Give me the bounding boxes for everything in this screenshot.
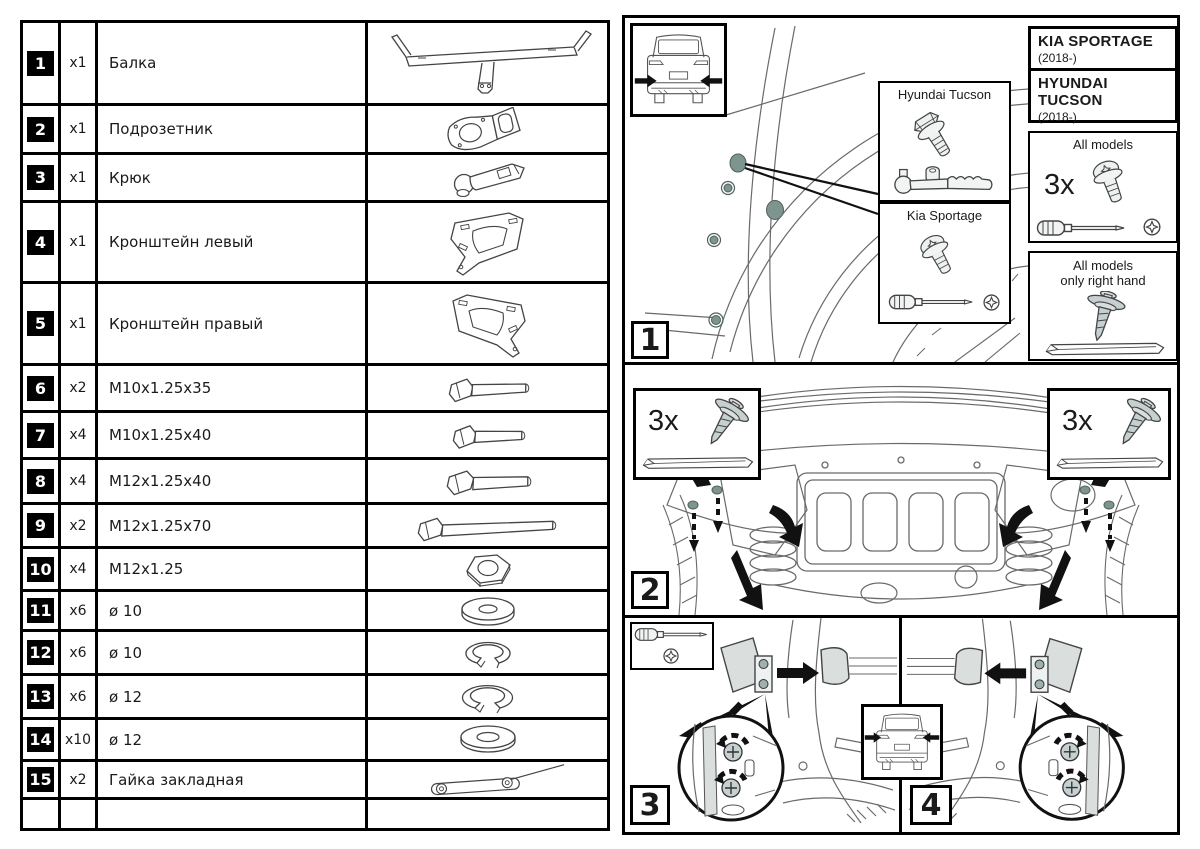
- part-number-badge: 9: [27, 513, 54, 538]
- table-row: 9 x2 M12x1.25x70: [23, 505, 607, 549]
- part-name: ø 10: [98, 592, 368, 629]
- ratchet-icon: [895, 167, 992, 193]
- steps-3-4-row: 3: [625, 618, 1177, 832]
- part-name: Кронштейн правый: [98, 284, 368, 363]
- part-qty: x2: [61, 762, 98, 797]
- removal-arrows: [731, 505, 1071, 610]
- part-name: ø 12: [98, 720, 368, 759]
- kia-sportage-title: KIA SPORTAGE: [1038, 33, 1168, 50]
- part-qty: x2: [61, 366, 98, 410]
- part-qty: x1: [61, 106, 98, 152]
- part-number-badge: 11: [27, 598, 54, 623]
- sportage-label: Kia Sportage: [880, 208, 1009, 223]
- table-row: 4 x1 Кронштейн левый: [23, 203, 607, 284]
- sportage-fastener-box: Kia Sportage: [878, 202, 1011, 324]
- spring-washer-icon: [368, 632, 607, 673]
- phillips-bit-icon: [664, 649, 678, 663]
- part-name: M12x1.25x40: [98, 460, 368, 502]
- all-models-qty: 3x: [1044, 169, 1075, 202]
- part-name: Подрозетник: [98, 106, 368, 152]
- arrow-left-icon: [635, 75, 657, 88]
- step3-number: 3: [630, 785, 670, 825]
- part-qty: x1: [61, 284, 98, 363]
- parts-table: 1 x1 Балка 2 x1 Подрозетник: [20, 20, 610, 831]
- bulb-unit: [821, 648, 897, 685]
- trim-tool-icon: [640, 455, 756, 472]
- flat-washer-icon: [368, 720, 607, 759]
- arrow-left-icon: [865, 732, 881, 742]
- step2-number: 2: [631, 571, 669, 609]
- tow-hook-icon: [368, 155, 607, 200]
- table-row: 14 x10 ø 12: [23, 720, 607, 762]
- screwdriver-icon: [1036, 217, 1132, 239]
- part-qty: x10: [61, 720, 98, 759]
- clip-qty-box-left: 3x: [633, 388, 761, 480]
- part-name: ø 10: [98, 632, 368, 673]
- clip-qty-box-right: 3x: [1047, 388, 1171, 480]
- part-name: Крюк: [98, 155, 368, 200]
- part-name: M10x1.25x40: [98, 413, 368, 457]
- part-number-badge: 15: [27, 767, 54, 792]
- part-number-badge: 12: [27, 640, 54, 665]
- bracket-right-icon: [368, 284, 607, 363]
- part-number-badge: 5: [27, 311, 54, 336]
- trim-clip-icon: [1108, 395, 1164, 451]
- trim-clip-icon: [696, 395, 752, 451]
- part-qty: x1: [61, 23, 98, 103]
- part-number-badge: 1: [27, 51, 54, 76]
- weld-nut-strip-icon: [368, 762, 607, 797]
- part-name: M12x1.25x70: [98, 505, 368, 546]
- socket-plate-icon: [368, 106, 607, 152]
- hyundai-tucson-title: HYUNDAI TUCSON: [1038, 75, 1168, 109]
- tucson-fastener-box: Hyundai Tucson: [878, 81, 1011, 202]
- step1-number: 1: [631, 321, 669, 359]
- part-number-badge: 6: [27, 376, 54, 401]
- all-models-box: All models 3x: [1028, 131, 1177, 243]
- part-number-badge: 14: [27, 727, 54, 752]
- screwdriver-icon: [635, 629, 706, 641]
- bolt-icon: [368, 413, 607, 457]
- part-name: M12x1.25: [98, 549, 368, 589]
- table-row: 5 x1 Кронштейн правый: [23, 284, 607, 366]
- all-models-label: All models: [1030, 137, 1176, 152]
- step4-number: 4: [910, 785, 952, 825]
- table-row: 10 x4 M12x1.25: [23, 549, 607, 592]
- part-number-badge: 2: [27, 117, 54, 142]
- clip-arrows-right: [1080, 486, 1115, 552]
- table-row: 3 x1 Крюк: [23, 155, 607, 203]
- fastener-dots: [708, 154, 784, 327]
- part-qty: x2: [61, 505, 98, 546]
- table-row: 2 x1 Подрозетник: [23, 106, 607, 155]
- table-row: 8 x4 M12x1.25x40: [23, 460, 607, 505]
- part-qty: x4: [61, 413, 98, 457]
- arrow-right-icon: [777, 662, 819, 684]
- part-qty: x6: [61, 632, 98, 673]
- part-qty: x6: [61, 676, 98, 717]
- phillips-bit-icon: [1142, 217, 1162, 237]
- bolt-long-icon: [368, 505, 607, 546]
- part-name: ø 12: [98, 676, 368, 717]
- part-number-badge: 10: [27, 557, 54, 582]
- leader-lines: [745, 164, 878, 214]
- part-name: Гайка закладная: [98, 762, 368, 797]
- part-number-badge: 3: [27, 165, 54, 190]
- clip-arrows-left: [688, 486, 723, 552]
- part-qty: x4: [61, 549, 98, 589]
- table-row: 12 x6 ø 10: [23, 632, 607, 676]
- table-row: 6 x2 M10x1.25x35: [23, 366, 607, 413]
- part-name: M10x1.25x35: [98, 366, 368, 410]
- part-qty: x6: [61, 592, 98, 629]
- table-row: 1 x1 Балка: [23, 23, 607, 106]
- magnifier-circle: [679, 716, 783, 820]
- instruction-sheet: 1 x1 Балка 2 x1 Подрозетник: [0, 0, 1200, 849]
- instruction-steps: Hyundai Tucson Kia Sportage KIA SPORTA: [622, 15, 1180, 835]
- model-title-box: KIA SPORTAGE (2018-) HYUNDAI TUCSON (201…: [1028, 26, 1177, 123]
- arrow-right-icon: [923, 732, 939, 742]
- right-hand-label-2: only right hand: [1030, 273, 1176, 288]
- bolt-icon: [368, 460, 607, 502]
- beam-icon: [368, 23, 607, 103]
- bolt-icon: [368, 366, 607, 410]
- table-row: 13 x6 ø 12: [23, 676, 607, 720]
- kia-sportage-year: (2018-): [1038, 51, 1168, 65]
- right-hand-label-1: All models: [1030, 258, 1176, 273]
- table-row: 15 x2 Гайка закладная: [23, 762, 607, 800]
- clip-qty-left: 3x: [648, 405, 679, 438]
- part-qty: x1: [61, 155, 98, 200]
- part-qty: x1: [61, 203, 98, 281]
- clip-qty-right: 3x: [1062, 405, 1093, 438]
- part-number-badge: 13: [27, 684, 54, 709]
- bolt-icon: [1088, 155, 1136, 213]
- part-number-badge: 4: [27, 230, 54, 255]
- step2-panel: 3x 3x 2: [625, 365, 1177, 618]
- part-number-badge: 7: [27, 423, 54, 448]
- table-row-empty: [23, 800, 607, 828]
- trim-tool-icon: [1054, 455, 1166, 472]
- spring-washer-icon: [368, 676, 607, 717]
- table-row: 7 x4 M10x1.25x40: [23, 413, 607, 460]
- step1-panel: Hyundai Tucson Kia Sportage KIA SPORTA: [625, 18, 1177, 365]
- car-rear-inset: [630, 23, 727, 117]
- table-row: 11 x6 ø 10: [23, 592, 607, 632]
- flat-washer-icon: [368, 592, 607, 629]
- step4-panel: 4: [905, 618, 1177, 832]
- part-qty: x4: [61, 460, 98, 502]
- car-rear-inset-lamps: [861, 704, 943, 780]
- hex-nut-icon: [368, 549, 607, 589]
- trim-clip-icon: [1078, 291, 1128, 341]
- right-hand-box: All models only right hand: [1028, 251, 1177, 361]
- part-name: Балка: [98, 23, 368, 103]
- screwdriver-icon: [889, 295, 972, 308]
- bracket-left-icon: [368, 203, 607, 281]
- part-name: Кронштейн левый: [98, 203, 368, 281]
- hyundai-tucson-year: (2018-): [1038, 110, 1168, 124]
- phillips-bit-icon: [984, 295, 999, 310]
- part-number-badge: 8: [27, 469, 54, 494]
- tucson-label: Hyundai Tucson: [880, 87, 1009, 102]
- trim-tool-icon: [1038, 341, 1172, 358]
- arrow-right-icon: [700, 75, 722, 88]
- screwdriver-inset: [630, 622, 714, 670]
